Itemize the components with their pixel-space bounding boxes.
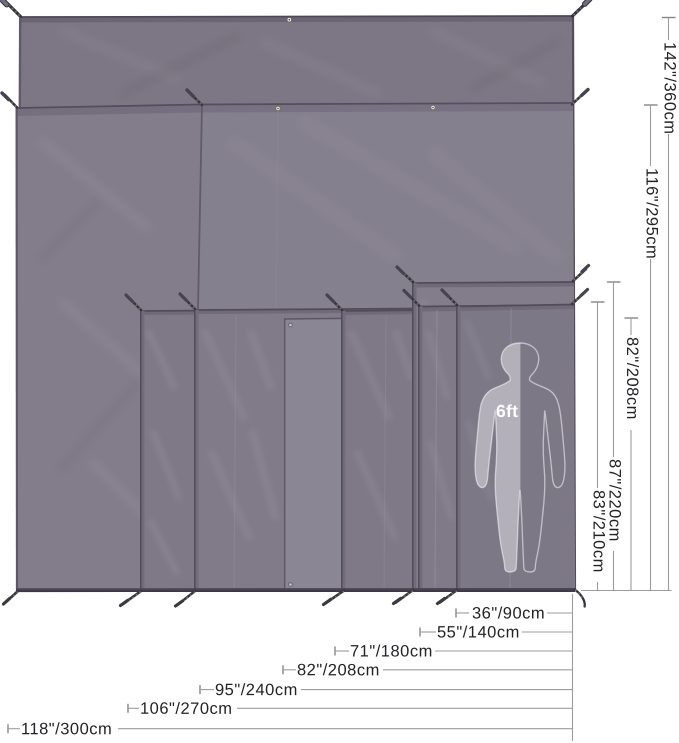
svg-text:116"/295cm: 116"/295cm <box>643 168 661 259</box>
svg-text:55"/140cm: 55"/140cm <box>437 624 520 642</box>
svg-text:95"/240cm: 95"/240cm <box>215 681 298 699</box>
svg-text:118"/300cm: 118"/300cm <box>21 720 112 738</box>
svg-text:106"/270cm: 106"/270cm <box>140 700 233 718</box>
svg-text:6ft: 6ft <box>496 401 518 421</box>
svg-text:71"/180cm: 71"/180cm <box>350 643 433 661</box>
svg-text:142"/360cm: 142"/360cm <box>661 42 679 135</box>
svg-text:82"/208cm: 82"/208cm <box>623 337 641 420</box>
svg-text:82"/208cm: 82"/208cm <box>297 661 380 679</box>
svg-text:83"/210cm: 83"/210cm <box>590 490 608 573</box>
svg-text:36"/90cm: 36"/90cm <box>472 605 545 623</box>
